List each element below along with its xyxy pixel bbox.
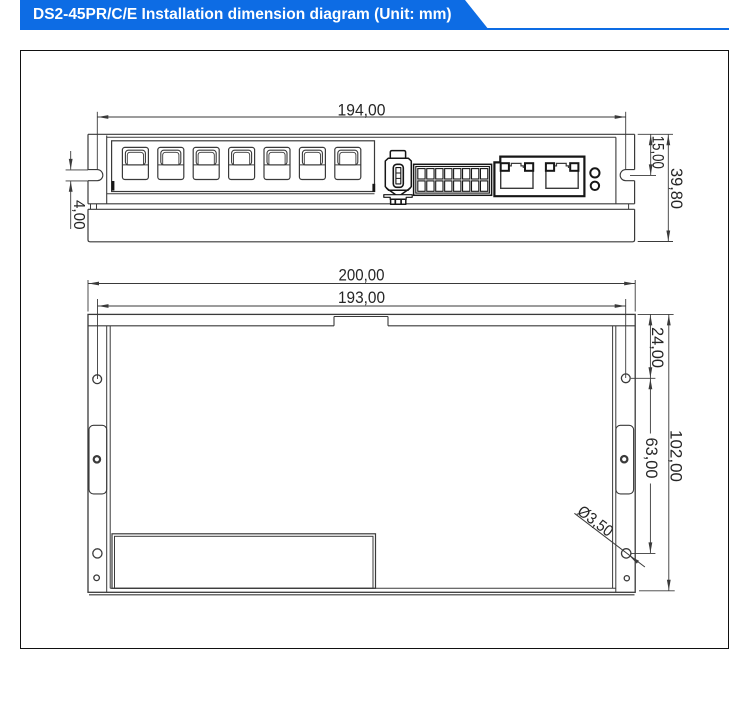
svg-text:194,00: 194,00 xyxy=(338,101,386,120)
svg-text:102,00: 102,00 xyxy=(667,430,686,482)
svg-text:200,00: 200,00 xyxy=(339,266,385,285)
svg-text:4,00: 4,00 xyxy=(70,200,87,230)
svg-text:Ø3,50: Ø3,50 xyxy=(574,503,616,541)
svg-text:15,00: 15,00 xyxy=(648,136,667,169)
svg-text:63,00: 63,00 xyxy=(642,438,661,479)
svg-text:39,80: 39,80 xyxy=(667,168,686,209)
svg-text:24,00: 24,00 xyxy=(648,327,667,368)
svg-text:193,00: 193,00 xyxy=(338,288,385,307)
